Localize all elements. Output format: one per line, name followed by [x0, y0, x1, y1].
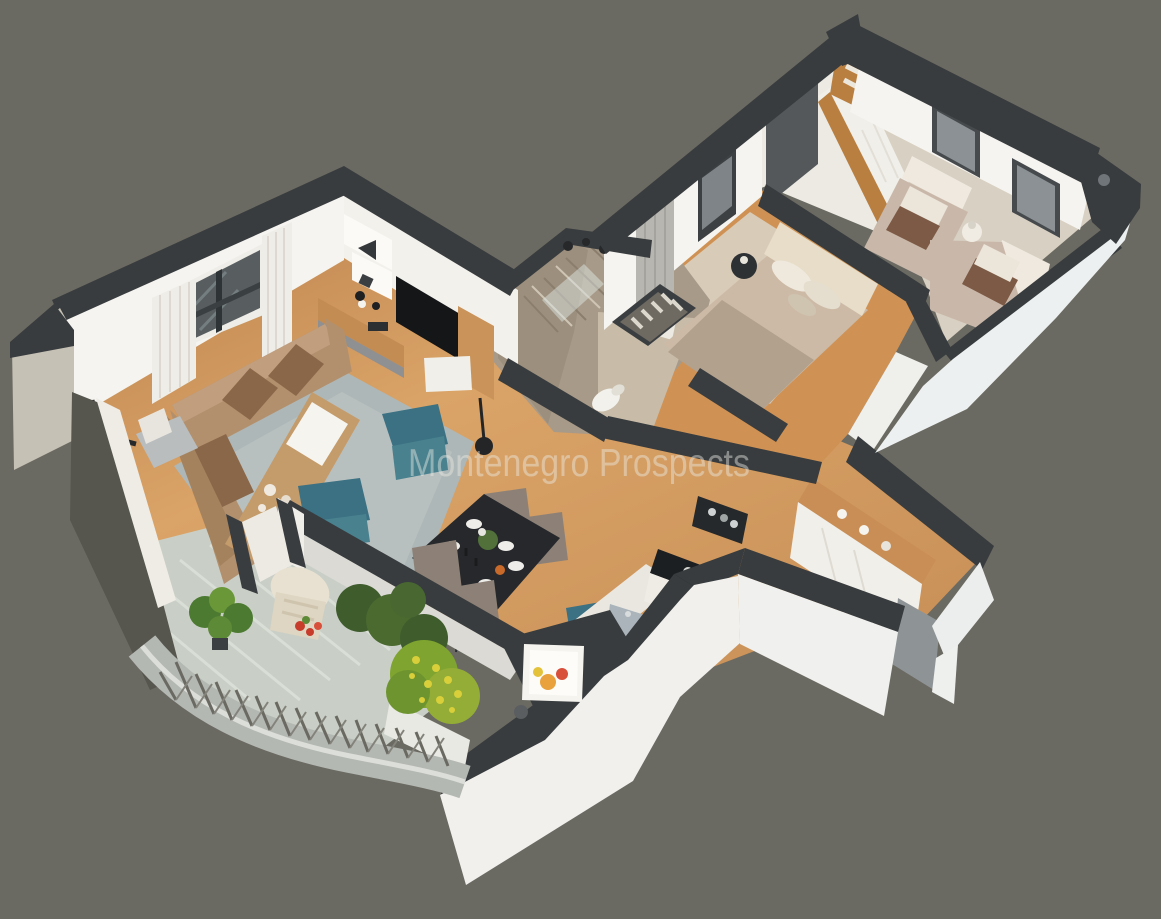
svg-text:Montenegro Prospects: Montenegro Prospects	[408, 442, 750, 485]
